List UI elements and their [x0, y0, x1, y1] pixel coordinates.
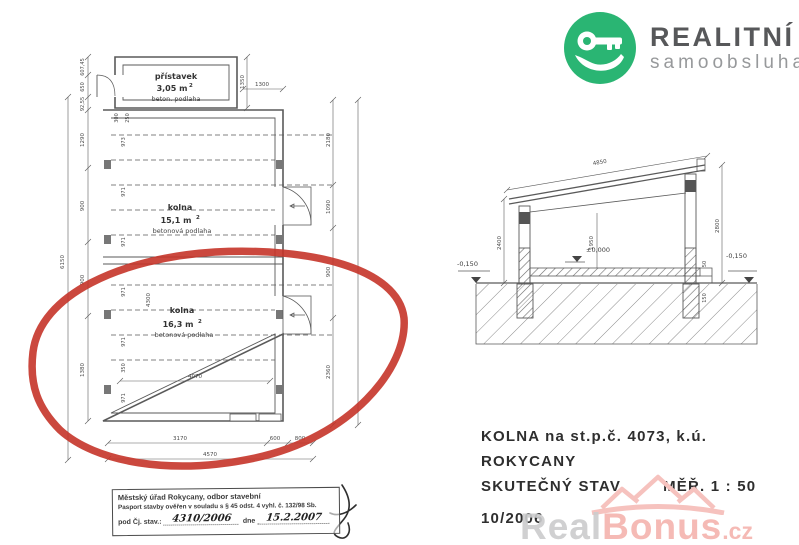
- dim-label: 250: [125, 113, 131, 123]
- stamp-date-label: dne: [243, 518, 256, 525]
- dim-label: 900: [80, 200, 86, 211]
- watermark-tld: .cz: [722, 518, 753, 544]
- dim-label: 3170: [173, 436, 187, 442]
- room1-area-exp: 2: [196, 215, 200, 221]
- dim-label: 92,55: [80, 97, 86, 111]
- section-roof: [509, 159, 705, 212]
- annex-name: přístavek: [155, 72, 198, 81]
- level-label-zero: ±0,000: [586, 246, 610, 254]
- room1-floor: betonová podlaha: [153, 227, 212, 235]
- annex-floor: beton. podlaha: [151, 95, 200, 103]
- dim-label: 2800: [715, 219, 721, 233]
- scanned-drawing-sheet: přístavek 3,05 m 2 beton. podlaha kolna …: [0, 0, 799, 545]
- door-room2: [283, 296, 311, 334]
- stamp-date-value: 15.2.2007: [258, 512, 331, 525]
- stamp-ref-number: 4310/2006: [164, 513, 241, 526]
- realbonus-watermark: RealBonus.cz: [520, 506, 753, 545]
- section-posts: [519, 174, 696, 283]
- dim-label: 973: [121, 137, 127, 147]
- dim-label: 4850: [592, 159, 607, 167]
- dim-label: 4070: [188, 374, 202, 380]
- dim-label: 1300: [255, 82, 269, 88]
- room1-labels: kolna 15,1 m 2 betonová podlaha: [153, 203, 212, 235]
- dim-label: 6150: [60, 255, 66, 269]
- door-room1: [283, 187, 311, 225]
- room2-name: kolna: [170, 306, 194, 315]
- dim-label: 971: [121, 187, 127, 197]
- official-stamp: Městský úřad Rokycany, odbor stavební Pa…: [112, 487, 340, 536]
- dim-label: 971: [121, 393, 127, 403]
- dim-label: 607,45: [80, 58, 86, 76]
- stamp-statement: Pasport stavby ověřen v souladu s § 45 o…: [118, 502, 334, 511]
- annex-labels: přístavek 3,05 m 2 beton. podlaha: [151, 72, 200, 103]
- dim-label: 2360: [326, 365, 332, 379]
- dim-label: 2180: [326, 133, 332, 147]
- dim-label: 350: [121, 363, 127, 373]
- room2-area: 16,3 m: [163, 320, 194, 329]
- dim-label: 4570: [203, 452, 217, 458]
- annex-area: 3,05 m: [157, 84, 188, 93]
- stamp-ref-label: pod Čj. stav.:: [118, 519, 162, 526]
- room1-area: 15,1 m: [161, 216, 192, 225]
- dim-label: 150: [702, 293, 708, 303]
- dim-label: 1380: [80, 363, 86, 377]
- room2-floor: betonová podlaha: [155, 331, 214, 339]
- section-ground: [476, 283, 757, 344]
- dim-label: 300: [114, 113, 120, 123]
- stamp-authority: Městský úřad Rokycany, odbor stavební: [118, 491, 334, 502]
- dim-label: 971: [121, 287, 127, 297]
- annex-area-exp: 2: [189, 83, 193, 89]
- dim-label: 4300: [146, 293, 152, 307]
- level-label-right: -0,150: [726, 252, 747, 260]
- roof-dashed-lines: [111, 135, 333, 360]
- room1-name: kolna: [168, 203, 192, 212]
- dim-label: 1350: [240, 75, 246, 89]
- dim-label: 971: [121, 337, 127, 347]
- caption-title: KOLNA na st.p.č. 4073, k.ú. ROKYCANY: [481, 424, 797, 474]
- section-dimension-labels: 4850 2400 1950 2800 50 150 ±0,000 -0,150…: [457, 159, 747, 303]
- watermark-part1: Real: [520, 506, 602, 545]
- dim-label: 900: [326, 266, 332, 277]
- brand-name: REALITNÍ: [650, 22, 799, 52]
- level-label-left: -0,150: [457, 260, 478, 268]
- dim-label: 2400: [497, 236, 503, 250]
- key-in-hand-icon: [563, 11, 637, 85]
- wall-piers: [104, 160, 283, 394]
- dim-label: 971: [121, 237, 127, 247]
- room2-area-exp: 2: [198, 319, 202, 325]
- dim-label: 50: [702, 261, 708, 267]
- cross-section: 4850 2400 1950 2800 50 150 ±0,000 -0,150…: [457, 153, 757, 344]
- dim-label: 1090: [326, 200, 332, 214]
- brand-subtitle: samoobsluha: [650, 52, 799, 74]
- watermark-part2: Bonus: [602, 506, 722, 545]
- room2-labels: kolna 16,3 m 2 betonová podlaha: [155, 306, 214, 339]
- dim-label: 1290: [80, 133, 86, 147]
- dim-label: 600: [270, 436, 281, 442]
- realitni-samoobsluha-logo: REALITNÍ samoobsluha: [563, 11, 799, 85]
- dim-label: 650: [80, 82, 86, 92]
